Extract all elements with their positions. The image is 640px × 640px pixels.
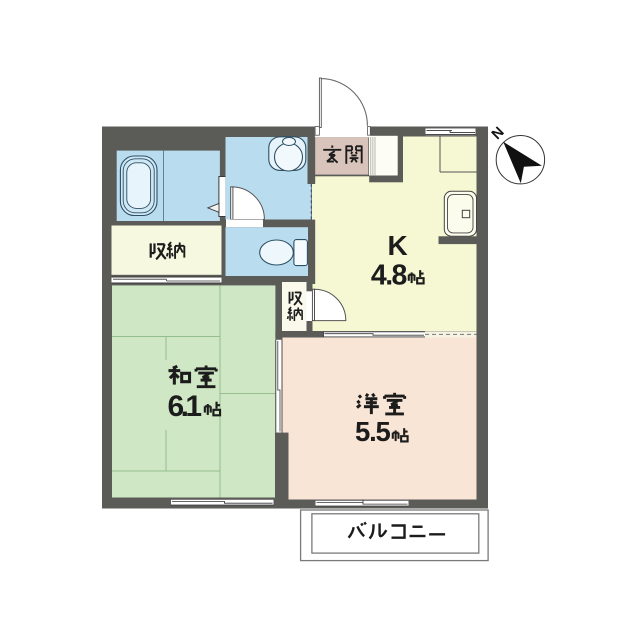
- svg-text:6.1: 6.1: [168, 390, 203, 423]
- svg-text:4.8: 4.8: [371, 260, 408, 292]
- svg-text:5.5: 5.5: [355, 416, 391, 447]
- svg-text:K: K: [388, 230, 408, 261]
